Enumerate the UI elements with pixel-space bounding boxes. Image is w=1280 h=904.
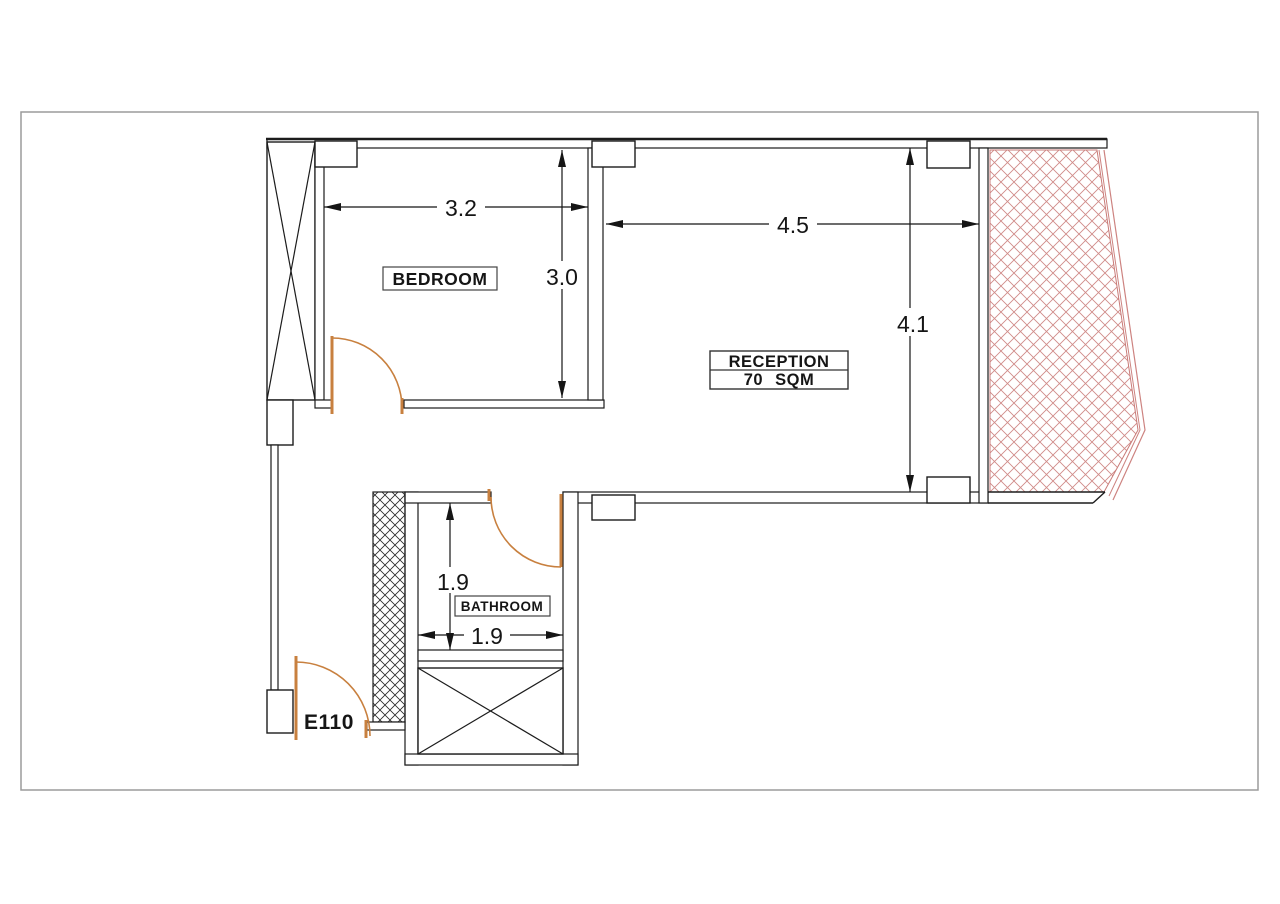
entry-door-label: E110 [304, 711, 354, 734]
left-wall-step [267, 400, 293, 445]
dim-bathroom-height: 1.9 [437, 569, 469, 595]
column-block-2 [592, 141, 635, 167]
bedroom-bottom-wall-right [404, 400, 604, 408]
column-block-5 [927, 477, 970, 503]
column-block-4 [592, 495, 635, 520]
bedroom-left-wall [315, 148, 324, 400]
reception-area-label: 70 SQM [744, 371, 815, 389]
corridor-hatch-strip [367, 492, 405, 730]
floor-plan-svg: 3.2 3.0 4.5 4.1 1.9 1.9 BEDROOM [0, 0, 1280, 904]
bedroom-label: BEDROOM [393, 269, 488, 289]
hatch-strip-cap [367, 722, 405, 730]
bathroom-left-wall [405, 492, 418, 765]
column-block-1 [315, 141, 357, 167]
bathroom-label: BATHROOM [461, 599, 544, 614]
column-block-3 [927, 141, 970, 168]
balcony-wall [979, 148, 988, 503]
dim-bathroom-width: 1.9 [471, 623, 503, 649]
bedroom-bottom-wall-left [315, 400, 332, 408]
floor-plan-page: 3.2 3.0 4.5 4.1 1.9 1.9 BEDROOM [0, 0, 1280, 904]
bathroom-floor-divider [418, 650, 563, 661]
entry-wall-block [267, 690, 293, 733]
dim-reception-width: 4.5 [777, 212, 809, 238]
bathroom-bottom-wall [405, 754, 578, 765]
reception-label: RECEPTION [729, 353, 830, 371]
dim-bedroom-height: 3.0 [546, 264, 578, 290]
left-exterior-wall [271, 445, 278, 690]
dim-bedroom-width: 3.2 [445, 195, 477, 221]
bathroom-right-wall [563, 492, 578, 765]
dim-reception-height: 4.1 [897, 311, 929, 337]
hatch-strip [373, 492, 405, 722]
bathroom-top-wall [405, 492, 491, 503]
top-wall [267, 139, 1107, 148]
partition-wall [588, 148, 603, 400]
